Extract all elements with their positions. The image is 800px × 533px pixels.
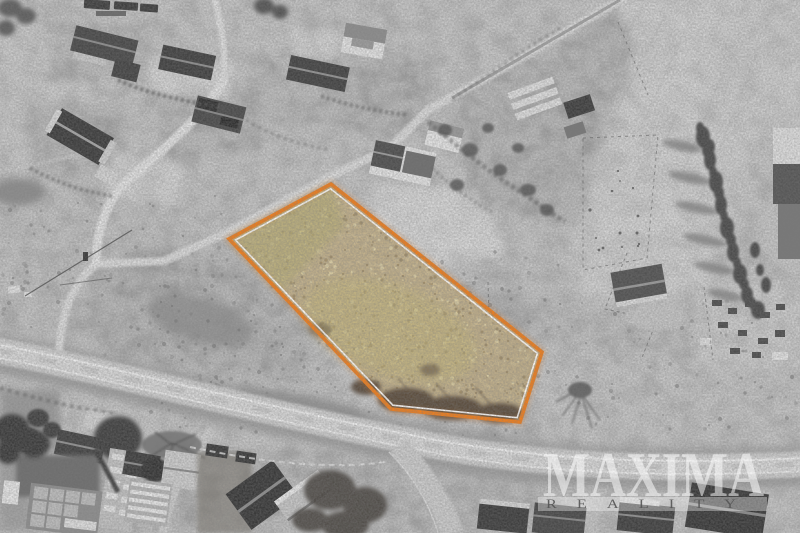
svg-text:REALITY: REALITY [546, 496, 756, 511]
